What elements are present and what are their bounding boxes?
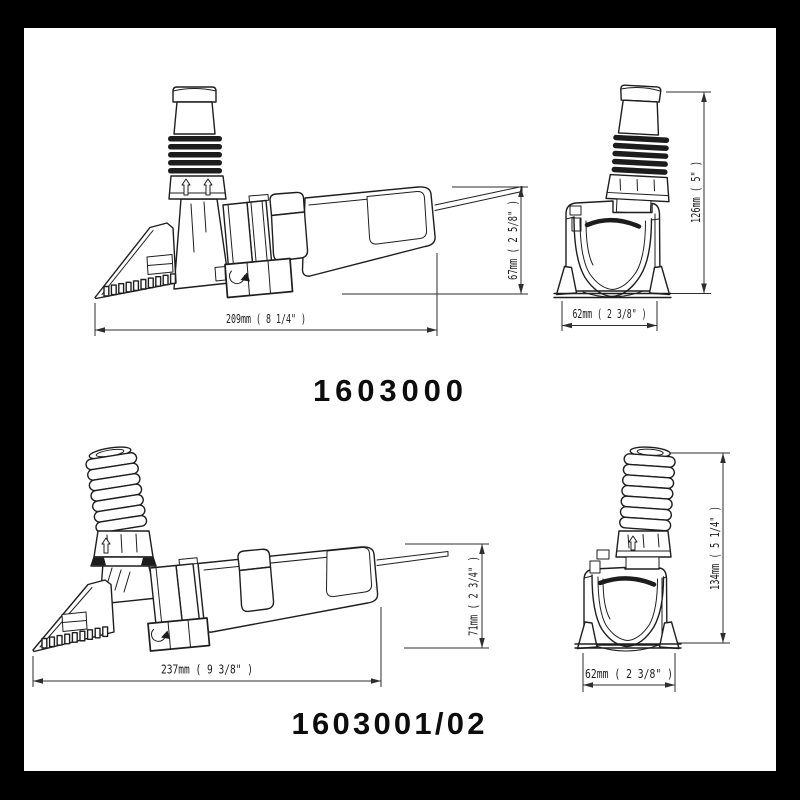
- model-number-1603001-02: 1603001/02: [292, 706, 485, 741]
- dim-height-side-1603001: 71mm ( 2 3/4" ): [466, 556, 481, 636]
- lock-collar: [148, 618, 210, 651]
- hose-nut: [91, 531, 156, 566]
- dim-length-side-1603000: 209mm ( 8 1/4" ): [226, 311, 306, 326]
- lock-collar: [215, 259, 293, 298]
- technical-drawing-canvas: 209mm ( 8 1/4" ) 67mm ( 2 5/8" ): [0, 0, 800, 800]
- dim-width-front-1603001: 62mm ( 2 3/8" ): [585, 666, 673, 681]
- dim-length-side-1603001: 237mm ( 9 3/8" ): [161, 662, 253, 677]
- drawing-sheet: 209mm ( 8 1/4" ) 67mm ( 2 5/8" ): [0, 0, 800, 800]
- dim-height-front-1603000: 126mm ( 5" ): [688, 161, 703, 223]
- dim-width-front-1603000: 62mm ( 2 3/8" ): [573, 306, 647, 321]
- dim-height-side-1603000: 67mm ( 2 5/8" ): [505, 200, 520, 280]
- corrugated-hose: [619, 445, 676, 531]
- dim-height-front-1603001: 134mm ( 5 1/4" ): [707, 506, 722, 590]
- model-number-1603000: 1603000: [313, 373, 463, 408]
